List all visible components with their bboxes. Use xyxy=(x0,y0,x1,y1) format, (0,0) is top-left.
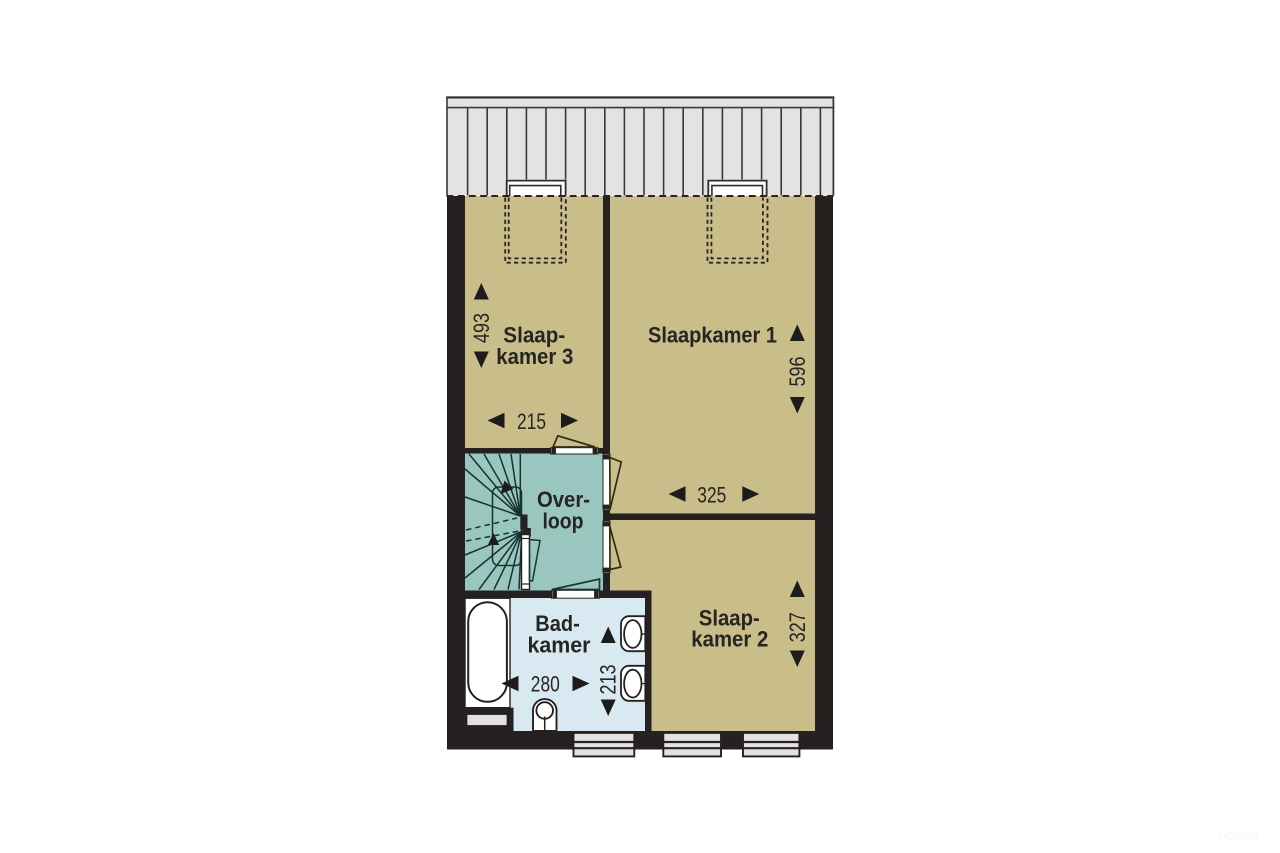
svg-text:Slaapkamer 1: Slaapkamer 1 xyxy=(648,322,777,347)
svg-text:327: 327 xyxy=(785,612,810,642)
svg-text:215: 215 xyxy=(517,409,546,434)
svg-text:loop: loop xyxy=(543,509,584,534)
svg-text:325: 325 xyxy=(697,483,726,508)
svg-text:kamer 2: kamer 2 xyxy=(691,626,768,651)
svg-text:280: 280 xyxy=(531,672,560,697)
svg-text:kamer: kamer xyxy=(528,632,591,657)
svg-text:DGRND: DGRND xyxy=(1218,831,1258,843)
svg-text:kamer 3: kamer 3 xyxy=(496,344,573,369)
svg-text:493: 493 xyxy=(469,313,494,343)
svg-text:596: 596 xyxy=(785,357,810,387)
svg-text:213: 213 xyxy=(596,665,621,695)
